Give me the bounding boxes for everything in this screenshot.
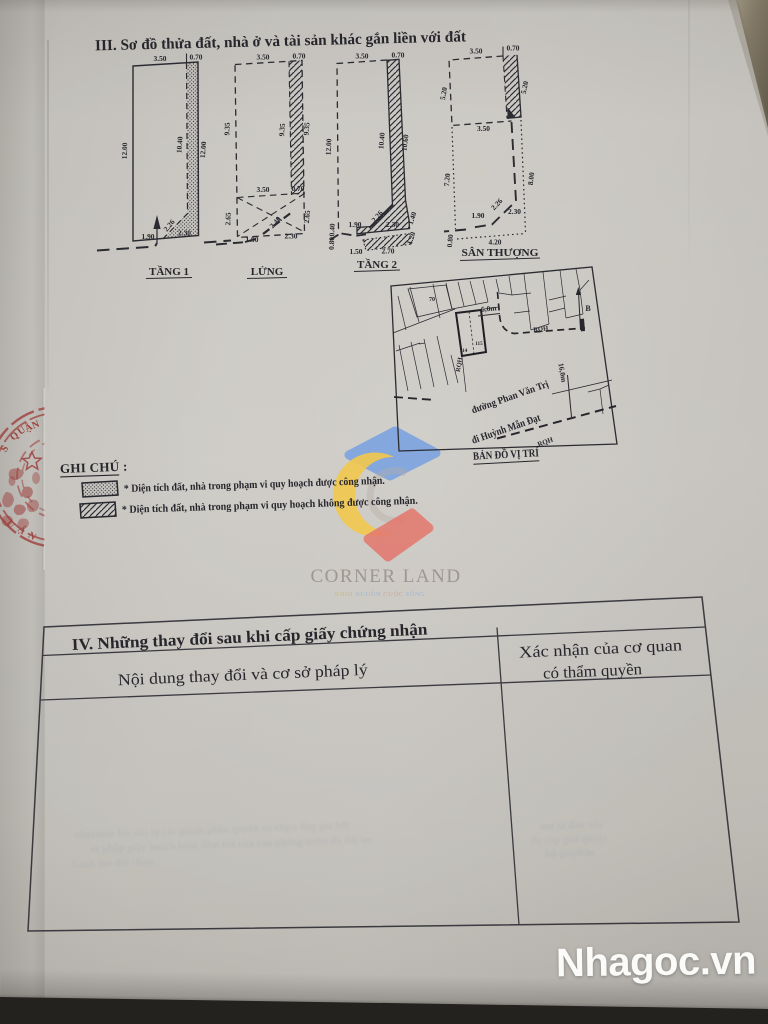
svg-text:2.30: 2.30 <box>178 229 191 238</box>
svg-text:2.70: 2.70 <box>382 247 395 256</box>
svg-text:12.00: 12.00 <box>324 138 334 155</box>
svg-text:TẦNG 1: TẦNG 1 <box>149 265 189 278</box>
svg-text:2.30: 2.30 <box>386 220 399 229</box>
svg-text:10.40: 10.40 <box>376 132 386 150</box>
svg-text:0.80: 0.80 <box>445 234 455 248</box>
svg-text:1.90: 1.90 <box>246 235 259 244</box>
svg-text:bộ giâybận: bộ giâybận <box>545 848 595 861</box>
svg-text:KHƠI NGUỒN CUỘC SỐNG: KHƠI NGUỒN CUỘC SỐNG <box>335 590 425 598</box>
svg-text:16,0m: 16,0m <box>556 362 568 383</box>
svg-text:3.50: 3.50 <box>470 47 483 56</box>
svg-text:5.20: 5.20 <box>438 86 449 101</box>
svg-text:Nội dung thay đổi và cơ sở phá: Nội dung thay đổi và cơ sở pháp lý <box>118 661 370 689</box>
svg-text:0.70: 0.70 <box>392 51 405 60</box>
svg-text:LỬNG: LỬNG <box>251 266 284 278</box>
svg-text:6,0m: 6,0m <box>480 303 497 314</box>
svg-text:S: S <box>0 443 11 454</box>
svg-text:có thẩm quyền: có thẩm quyền <box>543 660 643 682</box>
svg-text:10.60: 10.60 <box>400 134 411 152</box>
svg-text:2.65: 2.65 <box>223 212 232 226</box>
svg-text:3.50: 3.50 <box>356 52 369 61</box>
svg-text:12.00: 12.00 <box>198 141 208 159</box>
svg-text:10.40: 10.40 <box>174 136 184 154</box>
svg-text:1.20: 1.20 <box>405 230 418 245</box>
svg-text:3.50: 3.50 <box>477 124 490 133</box>
svg-text:3.50: 3.50 <box>257 185 270 194</box>
svg-text:2.65: 2.65 <box>302 210 312 224</box>
svg-text:III. Sơ đồ thửa đất, nhà ở và: III. Sơ đồ thửa đất, nhà ở và tài sản kh… <box>95 28 467 54</box>
svg-text:3.50: 3.50 <box>154 54 167 63</box>
svg-text:8.00: 8.00 <box>526 171 537 185</box>
svg-text:5.20: 5.20 <box>519 80 531 95</box>
svg-text:RQH: RQH <box>455 357 464 373</box>
svg-text:1.50: 1.50 <box>350 247 363 256</box>
svg-text:SÂN THƯỢNG: SÂN THƯỢNG <box>462 247 539 259</box>
svg-text:1.90: 1.90 <box>472 211 485 220</box>
svg-text:2.30: 2.30 <box>285 232 298 241</box>
svg-text:9.35: 9.35 <box>222 122 231 136</box>
svg-text:2.40: 2.40 <box>267 214 283 230</box>
svg-text:7.20: 7.20 <box>442 173 452 187</box>
svg-text:đn cấp giải quyệt: đn cấp giải quyệt <box>530 833 608 847</box>
svg-text:3.50: 3.50 <box>257 53 270 62</box>
svg-text:1.90: 1.90 <box>142 232 155 241</box>
svg-text:GHI CHÚ :: GHI CHÚ : <box>60 459 128 476</box>
svg-text:12.00: 12.00 <box>120 142 130 159</box>
svg-text:đường Phan Văn Trị: đường Phan Văn Trị <box>470 379 550 416</box>
svg-text:0.70: 0.70 <box>292 184 305 193</box>
svg-text:1.90: 1.90 <box>349 220 362 229</box>
svg-text:0.70: 0.70 <box>293 52 306 61</box>
svg-text:0.80: 0.80 <box>327 236 336 250</box>
svg-text:mơ tả đầu xây: mơ tả đầu xây <box>540 819 605 832</box>
svg-text:CORNER LAND: CORNER LAND <box>310 566 461 587</box>
svg-text:9.35: 9.35 <box>302 122 312 136</box>
svg-text:4.20: 4.20 <box>489 238 502 247</box>
svg-text:114: 114 <box>460 348 468 354</box>
svg-text:70: 70 <box>429 297 435 303</box>
svg-text:115: 115 <box>475 341 483 347</box>
svg-text:TẦNG 2: TẦNG 2 <box>357 258 398 271</box>
svg-text:0.70: 0.70 <box>190 53 203 62</box>
svg-text:B: B <box>585 304 591 313</box>
svg-text:2.30: 2.30 <box>508 207 521 216</box>
svg-text:9.35: 9.35 <box>277 123 287 137</box>
svg-text:RQH: RQH <box>533 325 549 334</box>
svg-text:IV. Những thay đổi sau khi cấp: IV. Những thay đổi sau khi cấp giấy chứn… <box>71 619 427 654</box>
svg-text:0.40: 0.40 <box>327 223 336 237</box>
svg-text:Xanh đai đởi chup: Xanh đai đởi chup <box>71 857 155 871</box>
svg-text:2.26: 2.26 <box>489 196 505 212</box>
svg-text:0.70: 0.70 <box>507 44 520 53</box>
svg-text:Xác nhận của cơ quan: Xác nhận của cơ quan <box>519 636 683 661</box>
